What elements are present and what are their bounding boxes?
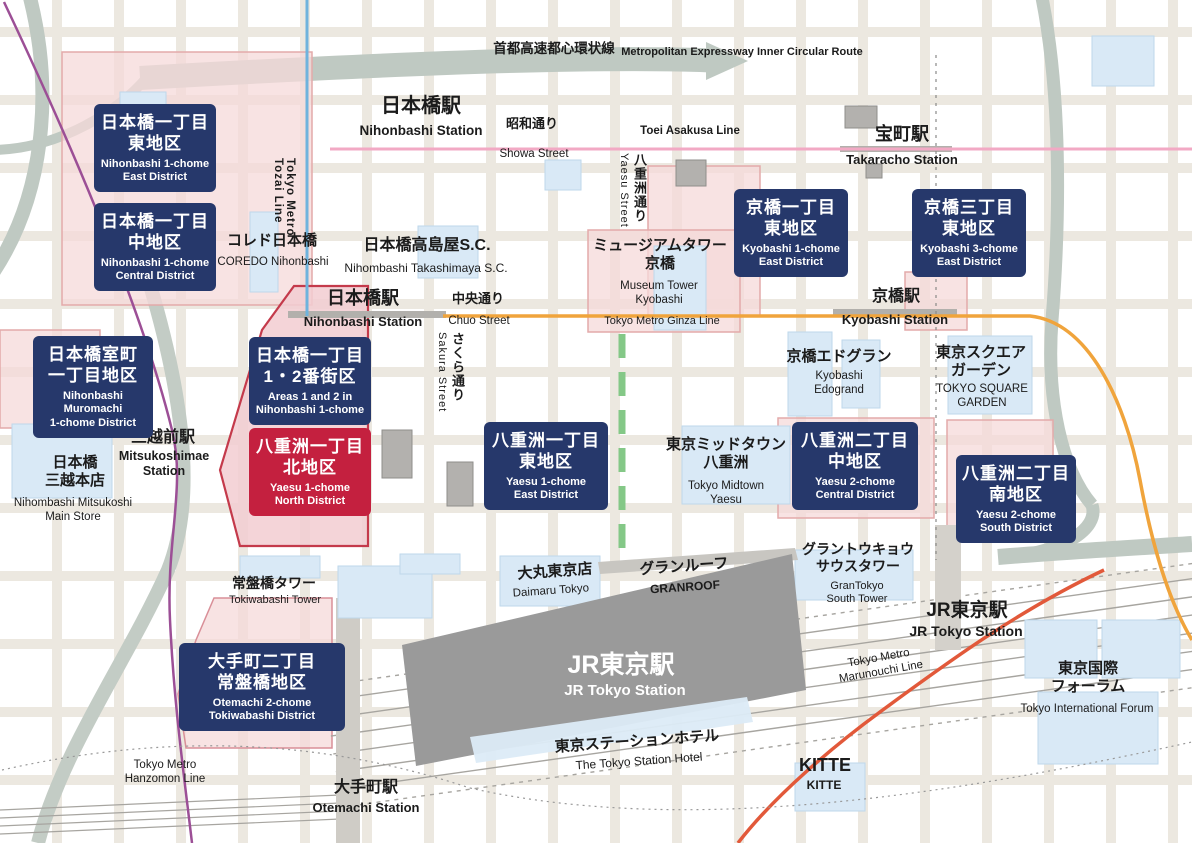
showa-street-label-en: Showa Street	[499, 148, 568, 162]
tokiwabashi-tower-label-en: Tokiwabashi Tower	[229, 594, 321, 607]
gran-tokyo-south-label-jp: グラントウキョウ サウスタワー	[802, 541, 914, 575]
jr-tokyo-station-east-en: JR Tokyo Station	[909, 623, 1022, 640]
district-name-en: Nihonbashi 1-chomeEast District	[98, 158, 212, 186]
district-box-yaesu-1-east: 八重洲一丁目東地区 Yaesu 1-chomeEast District	[484, 422, 608, 510]
jr-tokyo-station-east-jp: JR東京駅	[926, 600, 1007, 623]
edogran-label-jp: 京橋エドグラン	[786, 348, 891, 366]
district-box-kyobashi-1-east: 京橋一丁目東地区 Kyobashi 1-chomeEast District	[734, 189, 848, 277]
midtown-label-jp: 東京ミッドタウン 八重洲	[666, 436, 786, 472]
tokiwabashi-tower-label-jp: 常盤橋タワー	[232, 575, 316, 592]
chuo-street-label-jp: 中央通り	[452, 291, 504, 307]
district-name-jp: 八重洲一丁目北地区	[253, 436, 367, 479]
nihonbashi-station-top-jp: 日本橋駅	[381, 94, 461, 118]
nihonbashi-station-chuo-en: Nihonbashi Station	[304, 314, 422, 330]
coredo-label-en: COREDO Nihonbashi	[217, 256, 328, 270]
district-name-en: Kyobashi 1-chomeEast District	[738, 243, 844, 271]
takashimaya-label-jp: 日本橋高島屋S.C.	[363, 236, 490, 255]
jr-tokyo-station-main-jp: JR東京駅	[568, 650, 675, 680]
edogran-label-en: Kyobashi Edogrand	[814, 370, 864, 398]
expressway-label-en: Metropolitan Expressway Inner Circular R…	[621, 46, 862, 59]
district-name-jp: 八重洲一丁目東地区	[488, 430, 604, 473]
takashimaya-label-en: Nihombashi Takashimaya S.C.	[344, 261, 507, 275]
building	[400, 554, 460, 574]
intl-forum-label-en: Tokyo International Forum	[1021, 703, 1154, 717]
kitte-label-jp: KITTE	[799, 755, 851, 777]
gray-building	[845, 106, 877, 128]
gran-tokyo-south-label-en: GranTokyo South Tower	[827, 580, 888, 606]
district-name-jp: 八重洲二丁目南地区	[960, 463, 1072, 506]
takaracho-station-en: Takaracho Station	[846, 152, 958, 168]
district-name-en: Yaesu 2-chomeCentral District	[796, 476, 914, 504]
gray-building	[447, 462, 473, 506]
chuo-street-label-en: Chuo Street	[448, 315, 509, 329]
district-name-jp: 京橋一丁目東地区	[738, 197, 844, 240]
district-name-jp: 八重洲二丁目中地区	[796, 430, 914, 473]
mitsukoshimae-station-en: Mitsukoshimae Station	[119, 449, 209, 479]
kyobashi-station-en: Kyobashi Station	[842, 312, 948, 328]
district-box-nihonbashi-1-east: 日本橋一丁目東地区 Nihonbashi 1-chomeEast Distric…	[94, 104, 216, 192]
hanzomon-line-label: Tokyo Metro Hanzomon Line	[125, 759, 206, 787]
district-name-jp: 日本橋一丁目東地区	[98, 112, 212, 155]
district-box-nihonbashi-1-central: 日本橋一丁目中地区 Nihonbashi 1-chomeCentral Dist…	[94, 203, 216, 291]
district-name-en: Otemachi 2-chomeTokiwabashi District	[183, 697, 341, 725]
district-name-jp: 京橋三丁目東地区	[916, 197, 1022, 240]
tozai-line-label: Tokyo Metro Tozai Line	[272, 158, 296, 237]
museum-tower-label-en: Museum Tower Kyobashi	[620, 280, 698, 308]
square-garden-label-jp: 東京スクエア ガーデン	[936, 344, 1026, 380]
district-box-otemachi-tokiwabashi: 大手町二丁目常盤橋地区 Otemachi 2-chomeTokiwabashi …	[179, 643, 345, 731]
sakura-street-label: さくら通り Sakura Street	[436, 332, 467, 412]
museum-tower-label-jp: ミュージアムタワー 京橋	[593, 237, 727, 273]
nihonbashi-station-chuo-jp: 日本橋駅	[327, 288, 399, 310]
showa-street-label-jp: 昭和通り	[506, 116, 558, 132]
district-name-en: Areas 1 and 2 inNihonbashi 1-chome	[253, 391, 367, 419]
district-name-en: Nihonbashi 1-chomeCentral District	[98, 257, 212, 285]
gray-building	[676, 160, 706, 186]
mitsukoshi-label-en: Nihombashi Mitsukoshi Main Store	[14, 497, 132, 525]
district-box-muromachi: 日本橋室町一丁目地区 Nihonbashi Muromachi1-chome D…	[33, 336, 153, 438]
intl-forum-label-jp: 東京国際 フォーラム	[1051, 660, 1126, 696]
district-box-kyobashi-3-east: 京橋三丁目東地区 Kyobashi 3-chomeEast District	[912, 189, 1026, 277]
district-box-yaesu-2-central: 八重洲二丁目中地区 Yaesu 2-chomeCentral District	[792, 422, 918, 510]
district-box-yaesu-2-south: 八重洲二丁目南地区 Yaesu 2-chomeSouth District	[956, 455, 1076, 543]
otemachi-station-jp: 大手町駅	[334, 778, 398, 797]
district-box-yaesu-1-north: 八重洲一丁目北地区 Yaesu 1-chomeNorth District	[249, 428, 371, 516]
asakusa-line-label: Toei Asakusa Line	[640, 125, 740, 139]
district-name-en: Nihonbashi Muromachi1-chome District	[37, 390, 149, 431]
district-box-areas-1-2: 日本橋一丁目1・2番街区 Areas 1 and 2 inNihonbashi …	[249, 337, 371, 425]
tokyo-station-area-map: 日本橋一丁目東地区 Nihonbashi 1-chomeEast Distric…	[0, 0, 1192, 843]
district-name-jp: 日本橋一丁目中地区	[98, 211, 212, 254]
yaesu-elevated-deck	[998, 544, 1192, 557]
expressway-label-jp: 首都高速都心環状線	[493, 41, 615, 57]
gray-building	[382, 430, 412, 478]
ginza-line-label: Tokyo Metro Ginza Line	[604, 315, 720, 328]
square-garden-label-en: TOKYO SQUARE GARDEN	[936, 383, 1028, 411]
kyobashi-station-jp: 京橋駅	[872, 287, 920, 306]
takaracho-station-jp: 宝町駅	[875, 124, 929, 146]
building	[545, 160, 581, 190]
district-name-en: Yaesu 1-chomeNorth District	[253, 482, 367, 510]
nihonbashi-station-top-en: Nihonbashi Station	[360, 123, 483, 139]
midtown-label-en: Tokyo Midtown Yaesu	[688, 480, 764, 508]
otemachi-station-en: Otemachi Station	[313, 800, 420, 816]
coredo-label-jp: コレド日本橋	[227, 232, 317, 250]
district-name-en: Kyobashi 3-chomeEast District	[916, 243, 1022, 271]
mitsukoshi-label-jp: 日本橋 三越本店	[45, 454, 105, 490]
kitte-label-en: KITTE	[807, 778, 842, 792]
building	[1092, 36, 1154, 86]
district-name-jp: 日本橋室町一丁目地区	[37, 344, 149, 387]
district-name-jp: 大手町二丁目常盤橋地区	[183, 651, 341, 694]
district-name-jp: 日本橋一丁目1・2番街区	[253, 345, 367, 388]
district-name-en: Yaesu 1-chomeEast District	[488, 476, 604, 504]
jr-tokyo-station-main-en: JR Tokyo Station	[564, 682, 685, 700]
district-name-en: Yaesu 2-chomeSouth District	[960, 509, 1072, 537]
yaesu-street-label: 八重洲通り Yaesu Street	[618, 153, 649, 228]
